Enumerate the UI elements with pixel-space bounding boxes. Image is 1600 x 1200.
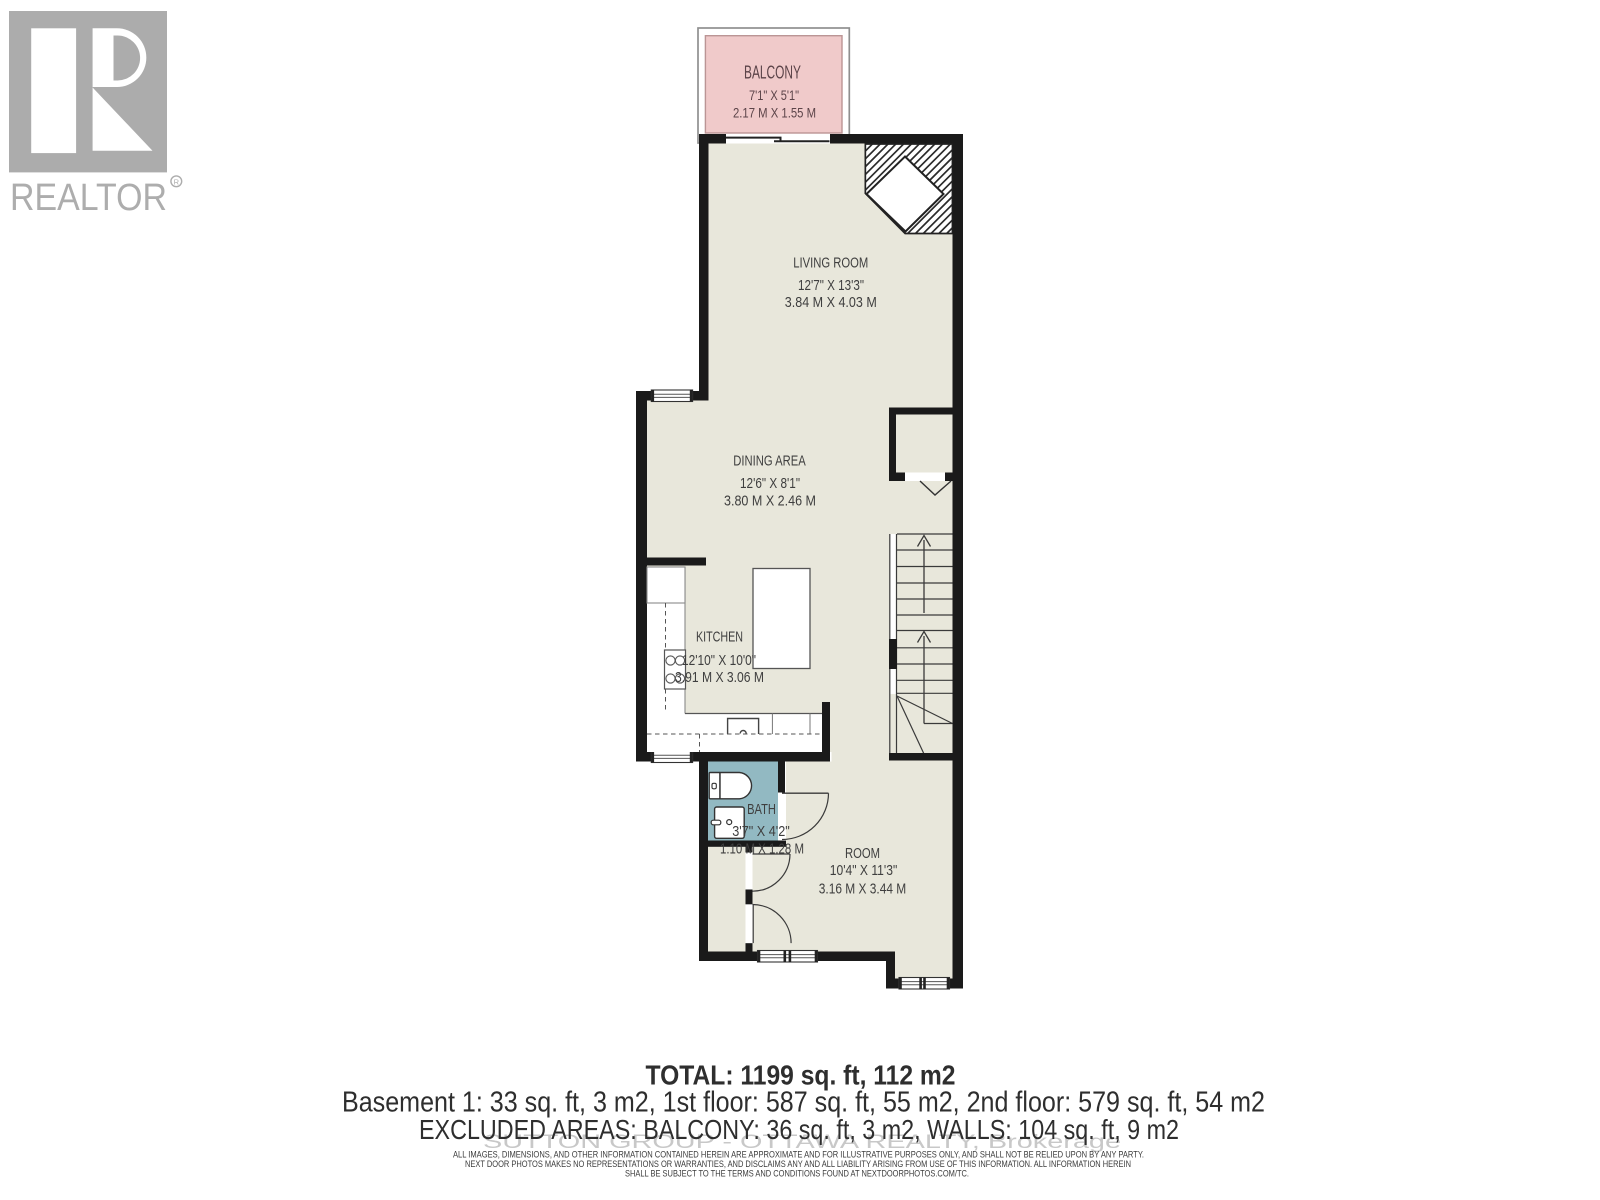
svg-text:SHALL BE SUBJECT TO THE TERMS: SHALL BE SUBJECT TO THE TERMS AND CONDIT… xyxy=(625,1168,969,1178)
svg-text:3.91 M X 3.06 M: 3.91 M X 3.06 M xyxy=(675,669,764,686)
svg-text:REALTOR: REALTOR xyxy=(10,177,167,219)
svg-text:12'6" X 8'1": 12'6" X 8'1" xyxy=(740,475,800,492)
svg-text:KITCHEN: KITCHEN xyxy=(696,628,743,645)
svg-text:ROOM: ROOM xyxy=(845,845,880,862)
svg-text:12'10" X 10'0": 12'10" X 10'0" xyxy=(682,652,756,669)
svg-text:10'4" X 11'3": 10'4" X 11'3" xyxy=(830,862,898,879)
svg-text:7'1" X 5'1": 7'1" X 5'1" xyxy=(749,87,799,103)
svg-text:12'7" X 13'3": 12'7" X 13'3" xyxy=(798,277,864,294)
svg-text:R: R xyxy=(174,178,180,187)
svg-text:3.84 M X 4.03 M: 3.84 M X 4.03 M xyxy=(785,294,877,311)
svg-text:EXCLUDED AREAS: BALCONY: 36 sq: EXCLUDED AREAS: BALCONY: 36 sq. ft, 3 m2… xyxy=(419,1114,1179,1145)
svg-text:ALL IMAGES, DIMENSIONS, AND OT: ALL IMAGES, DIMENSIONS, AND OTHER INFORM… xyxy=(453,1150,1144,1160)
svg-text:3.16 M X 3.44 M: 3.16 M X 3.44 M xyxy=(819,881,907,898)
svg-text:LIVING ROOM: LIVING ROOM xyxy=(793,254,868,271)
svg-text:2.17 M X 1.55 M: 2.17 M X 1.55 M xyxy=(733,105,816,121)
svg-text:3.80 M X 2.46 M: 3.80 M X 2.46 M xyxy=(724,492,816,509)
svg-text:3'7" X 4'2": 3'7" X 4'2" xyxy=(732,823,790,840)
svg-text:BALCONY: BALCONY xyxy=(744,62,801,83)
svg-text:1.10 M X 1.28 M: 1.10 M X 1.28 M xyxy=(720,841,804,858)
svg-text:BATH: BATH xyxy=(747,801,776,818)
svg-text:DINING AREA: DINING AREA xyxy=(733,452,806,469)
